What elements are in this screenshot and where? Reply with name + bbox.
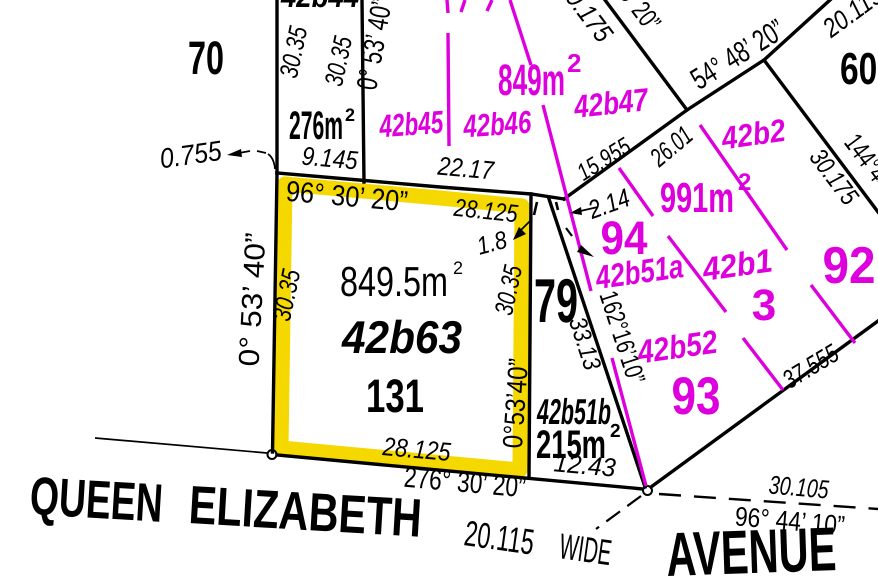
svg-text:28.125: 28.125: [381, 431, 453, 467]
svg-text:215m: 215m: [536, 423, 606, 467]
svg-text:93: 93: [672, 367, 721, 426]
svg-text:2: 2: [453, 258, 463, 278]
svg-text:WIDE: WIDE: [557, 525, 614, 573]
svg-text:42b45: 42b45: [377, 104, 445, 144]
svg-text:3: 3: [752, 281, 776, 330]
svg-text:92: 92: [823, 237, 876, 295]
svg-text:2: 2: [738, 169, 751, 196]
svg-text:42b46: 42b46: [461, 104, 532, 145]
svg-text:42b44: 42b44: [280, 0, 359, 14]
svg-text:601: 601: [840, 43, 878, 94]
svg-text:991m: 991m: [660, 174, 734, 221]
svg-text:9.145: 9.145: [301, 141, 360, 176]
svg-text:849.5m: 849.5m: [340, 258, 448, 305]
svg-text:131: 131: [366, 369, 424, 422]
svg-text:30.105: 30.105: [768, 469, 831, 504]
svg-text:70: 70: [188, 31, 224, 84]
svg-text:2: 2: [345, 105, 355, 125]
svg-text:QUEEN: QUEEN: [28, 466, 164, 534]
svg-text:849m: 849m: [498, 56, 565, 105]
svg-text:22.17: 22.17: [436, 151, 497, 186]
svg-text:2: 2: [610, 421, 621, 442]
svg-text:2: 2: [567, 48, 581, 78]
svg-text:42b63: 42b63: [341, 311, 462, 363]
svg-text:0°53’40”: 0°53’40”: [497, 357, 534, 449]
